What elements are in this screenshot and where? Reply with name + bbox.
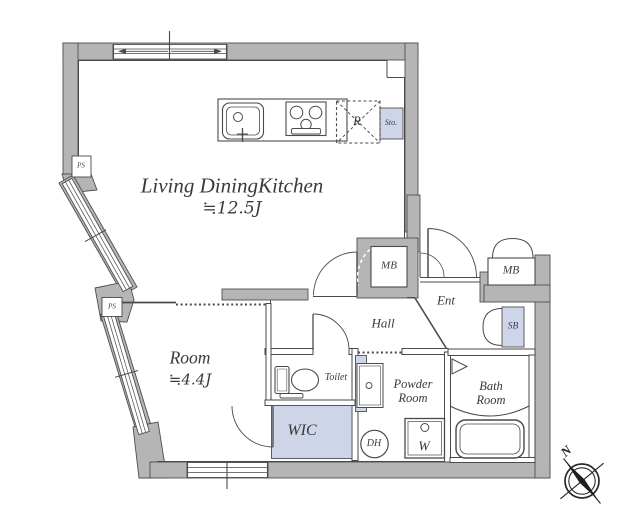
label-dh: DH	[367, 439, 381, 449]
floor-plan-drawing	[0, 0, 640, 527]
kitchen-sink	[223, 103, 264, 142]
entrance-door	[428, 229, 477, 278]
bathtub	[450, 406, 529, 458]
kitchen-stove	[286, 102, 326, 136]
shoe-box-doors	[483, 309, 502, 346]
room-label-ldk: Living DiningKitchen	[141, 176, 324, 197]
label-refrigerator: R	[353, 115, 361, 128]
room-label-toilet: Toilet	[325, 373, 347, 383]
door-ldk-hall	[314, 252, 358, 296]
porch-door	[420, 253, 444, 277]
toilet-fixture	[275, 367, 319, 399]
room-label-room: Room	[170, 349, 211, 367]
label-shoe-box: SB	[508, 322, 519, 332]
room-label-powder-room: Powder Room	[381, 377, 445, 405]
toilet-door	[313, 314, 349, 350]
vanity-unit	[357, 364, 383, 408]
meter-box-right-doors	[493, 239, 534, 259]
window-side-upper	[62, 178, 133, 291]
label-pipe-space-lower: PS	[108, 304, 116, 311]
area-label-ldk: ≒12.5J	[203, 201, 262, 218]
room-label-wic: WIC	[287, 423, 316, 439]
room-label-entrance: Ent	[437, 294, 455, 307]
label-meter-box-left: MB	[381, 261, 397, 272]
label-washer: W	[418, 439, 429, 453]
room-label-hall: Hall	[371, 317, 394, 330]
label-pipe-space-upper: PS	[77, 163, 85, 170]
label-storage: Sto.	[385, 119, 397, 127]
window-top	[113, 31, 227, 59]
wic-door	[232, 406, 273, 447]
sliding-door-room	[222, 289, 308, 300]
room-label-bath-room: Bath Room	[465, 379, 517, 407]
compass	[560, 459, 603, 504]
floor-plan: Living DiningKitchen ≒12.5J Room ≒4.4J H…	[0, 0, 640, 527]
label-meter-box-right: MB	[503, 265, 520, 277]
window-bottom	[187, 463, 268, 490]
area-label-room: ≒4.4J	[169, 373, 211, 388]
window-side-lower	[104, 313, 150, 434]
bath-folding-door-icon	[452, 359, 467, 374]
